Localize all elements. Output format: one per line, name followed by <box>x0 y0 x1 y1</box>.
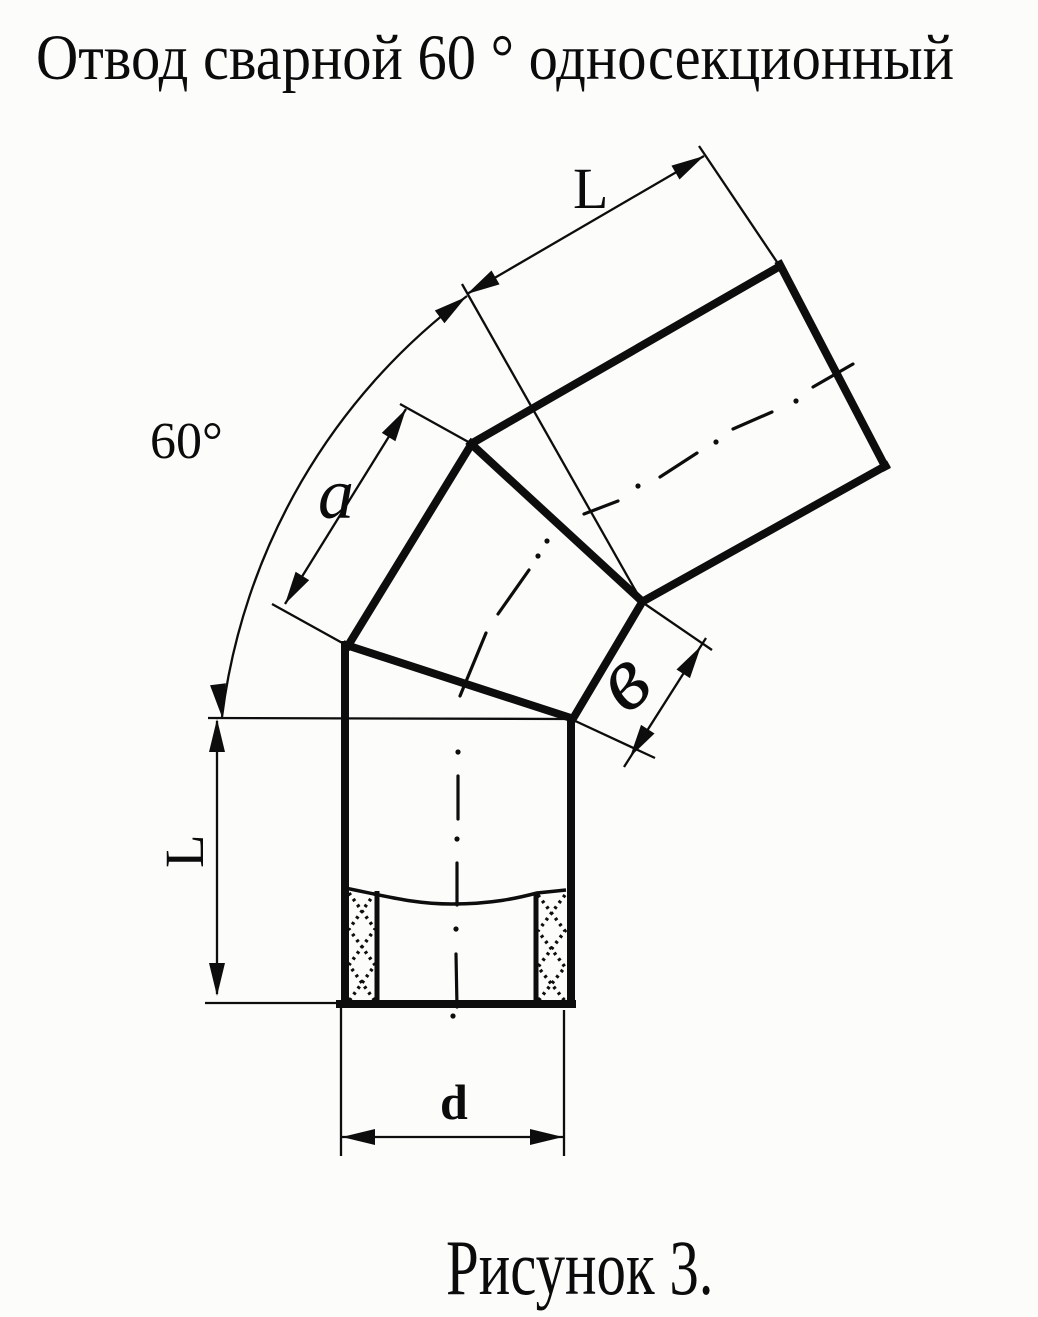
svg-text:Отвод сварной 60 ° односекцион: Отвод сварной 60 ° односекционный <box>36 22 954 93</box>
svg-text:L: L <box>573 156 608 221</box>
svg-text:Рисунок 3.: Рисунок 3. <box>446 1224 713 1311</box>
svg-text:a: a <box>318 454 354 534</box>
svg-text:60°: 60° <box>150 413 223 470</box>
svg-text:L: L <box>154 834 215 868</box>
svg-text:d: d <box>440 1074 468 1130</box>
